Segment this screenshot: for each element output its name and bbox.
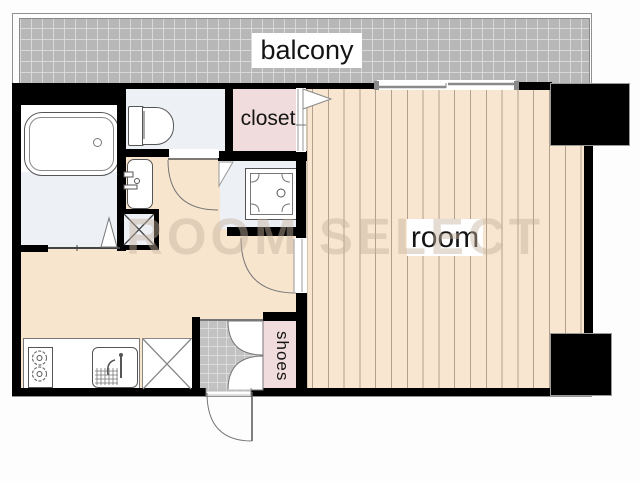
toilet-door-icon	[168, 159, 218, 210]
entrance-door-icon	[206, 388, 252, 441]
washer-alcove-door-icon	[219, 162, 233, 186]
refrigerator-x-icon	[143, 339, 191, 389]
shoes-label: shoes	[264, 322, 300, 390]
sink-details-icon	[95, 353, 123, 385]
balcony-window-icon	[374, 81, 519, 90]
floorplan: balcony closet room shoes ROOM SELECT	[0, 0, 640, 481]
watermark-text: ROOM SELECT	[126, 207, 544, 266]
shoes-cabinet-doors-icon	[228, 321, 263, 390]
bathroom-folding-door-icon	[48, 218, 120, 251]
balcony-label: balcony	[252, 33, 362, 68]
stove-burners-icon	[33, 351, 47, 381]
closet-label: closet	[234, 105, 302, 133]
washbasin-details-icon	[124, 172, 140, 189]
